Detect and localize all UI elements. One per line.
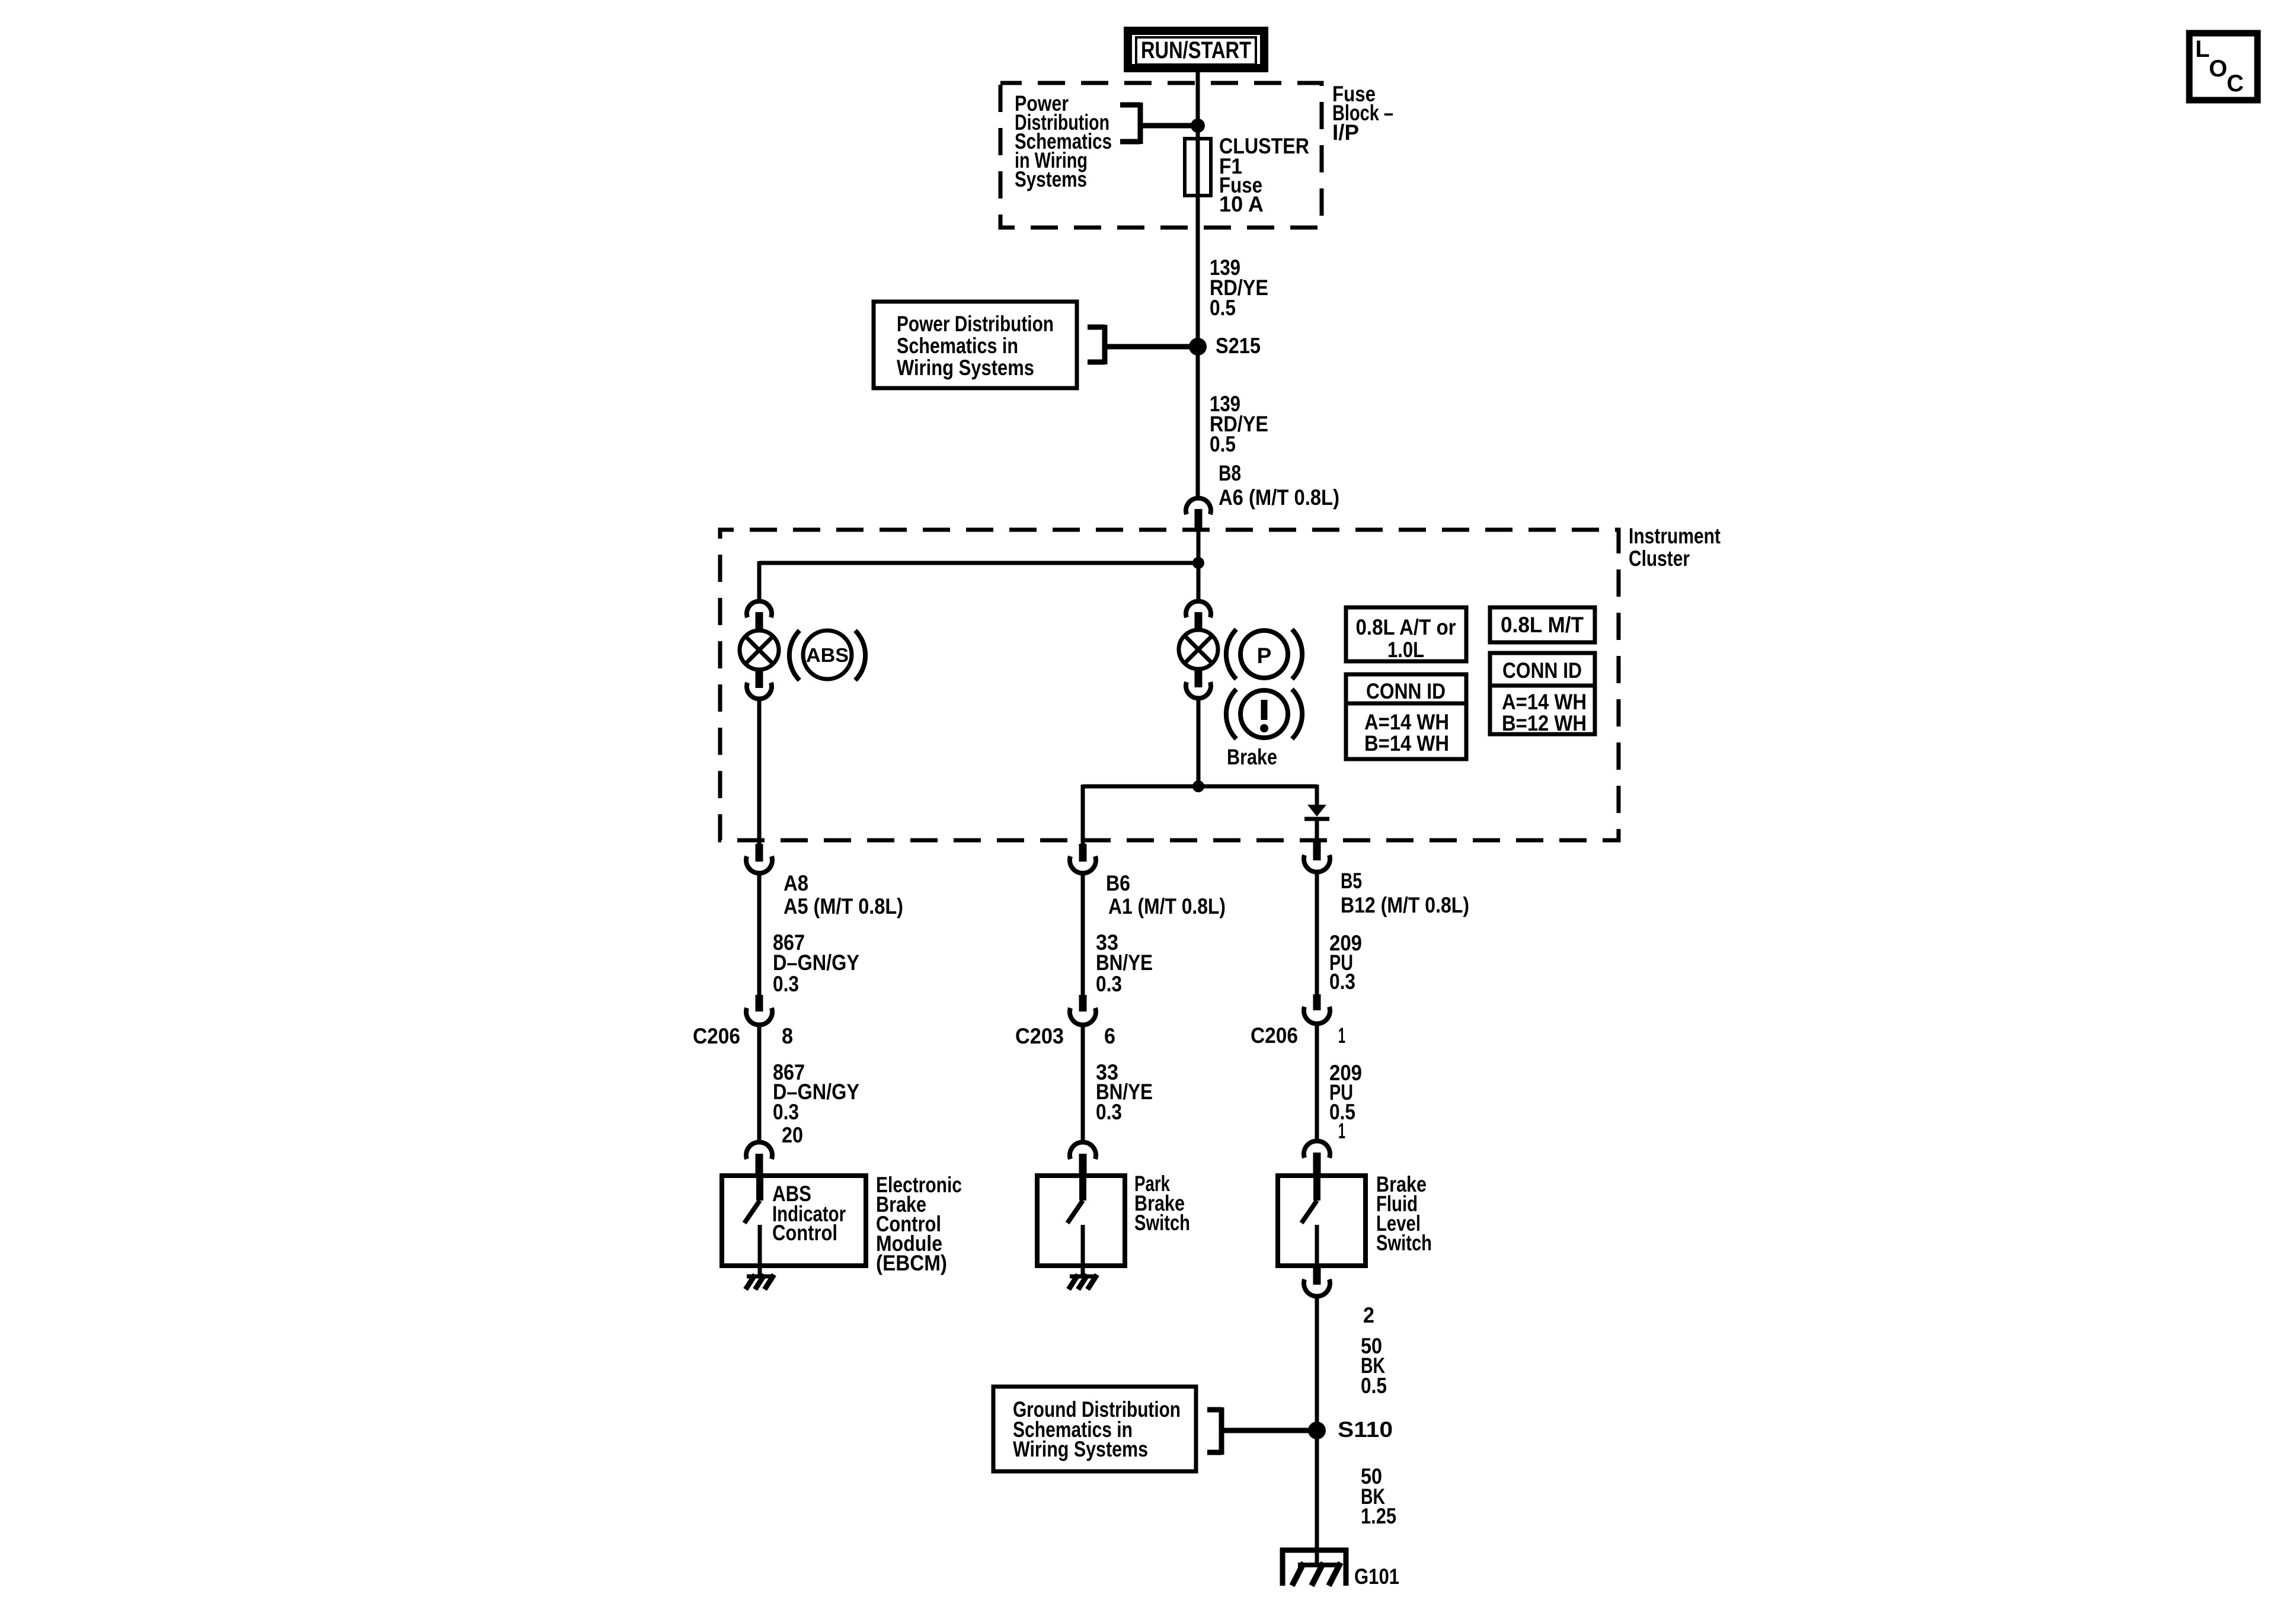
- svg-text:C206: C206: [1251, 1023, 1298, 1048]
- svg-text:6: 6: [1104, 1024, 1115, 1048]
- svg-text:A5 (M/T 0.8L): A5 (M/T 0.8L): [784, 894, 903, 918]
- svg-text:0.3: 0.3: [1096, 1100, 1122, 1124]
- svg-text:BN/YE: BN/YE: [1096, 950, 1153, 975]
- svg-text:P: P: [1257, 644, 1272, 668]
- svg-text:Instrument: Instrument: [1629, 524, 1721, 548]
- svg-text:0.3: 0.3: [773, 1100, 799, 1124]
- svg-text:1.25: 1.25: [1361, 1504, 1396, 1528]
- svg-text:Schematics in: Schematics in: [897, 334, 1018, 358]
- svg-text:0.3: 0.3: [773, 972, 799, 996]
- svg-text:C: C: [2227, 71, 2244, 97]
- svg-text:Control: Control: [772, 1221, 837, 1245]
- svg-text:B5: B5: [1341, 869, 1362, 893]
- svg-text:A6 (M/T 0.8L): A6 (M/T 0.8L): [1219, 485, 1339, 510]
- svg-text:RUN/START: RUN/START: [1141, 37, 1251, 63]
- svg-text:1.0L: 1.0L: [1387, 638, 1424, 662]
- svg-text:C206: C206: [693, 1024, 740, 1048]
- svg-text:C203: C203: [1015, 1024, 1064, 1048]
- svg-text:0.8L M/T: 0.8L M/T: [1501, 613, 1584, 637]
- svg-text:10 A: 10 A: [1219, 192, 1264, 216]
- svg-text:A1 (M/T 0.8L): A1 (M/T 0.8L): [1108, 894, 1226, 918]
- svg-text:B6: B6: [1106, 871, 1130, 895]
- svg-text:0.5: 0.5: [1361, 1374, 1387, 1398]
- svg-text:Wiring Systems: Wiring Systems: [1013, 1437, 1148, 1461]
- svg-text:Power Distribution: Power Distribution: [897, 312, 1054, 336]
- svg-text:CONN ID: CONN ID: [1502, 658, 1582, 683]
- svg-text:B=12 WH: B=12 WH: [1502, 711, 1587, 735]
- svg-text:Wiring Systems: Wiring Systems: [897, 356, 1034, 380]
- svg-text:Brake: Brake: [1227, 745, 1277, 769]
- svg-text:0.3: 0.3: [1329, 969, 1355, 994]
- svg-text:20: 20: [782, 1123, 803, 1147]
- svg-text:A8: A8: [784, 871, 808, 895]
- svg-text:S215: S215: [1216, 334, 1261, 358]
- svg-text:Switch: Switch: [1134, 1211, 1190, 1235]
- svg-text:2: 2: [1363, 1303, 1374, 1327]
- svg-text:0.5: 0.5: [1210, 432, 1236, 456]
- svg-text:A=14 WH: A=14 WH: [1364, 710, 1449, 734]
- svg-text:L: L: [2195, 36, 2209, 62]
- svg-text:0.5: 0.5: [1210, 296, 1236, 320]
- svg-text:O: O: [2209, 56, 2227, 82]
- svg-text:0.3: 0.3: [1096, 972, 1122, 996]
- svg-text:I/P: I/P: [1332, 120, 1359, 145]
- svg-text:G101: G101: [1354, 1564, 1399, 1589]
- svg-text:8: 8: [782, 1024, 793, 1048]
- svg-text:1: 1: [1338, 1023, 1345, 1048]
- svg-text:B=14 WH: B=14 WH: [1364, 731, 1449, 756]
- svg-text:Cluster: Cluster: [1629, 546, 1690, 571]
- svg-text:B12 (M/T 0.8L): B12 (M/T 0.8L): [1341, 893, 1469, 917]
- svg-text:ABS: ABS: [806, 644, 849, 666]
- svg-text:D–GN/GY: D–GN/GY: [773, 950, 859, 975]
- svg-text:Switch: Switch: [1376, 1231, 1432, 1255]
- svg-text:B8: B8: [1219, 461, 1241, 485]
- svg-text:CONN ID: CONN ID: [1366, 679, 1446, 703]
- svg-text:A=14 WH: A=14 WH: [1502, 690, 1587, 714]
- svg-text:(EBCM): (EBCM): [876, 1251, 947, 1275]
- svg-text:S110: S110: [1338, 1417, 1393, 1442]
- svg-text:1: 1: [1338, 1119, 1345, 1143]
- svg-text:Systems: Systems: [1015, 167, 1087, 191]
- svg-text:0.8L A/T or: 0.8L A/T or: [1356, 615, 1456, 639]
